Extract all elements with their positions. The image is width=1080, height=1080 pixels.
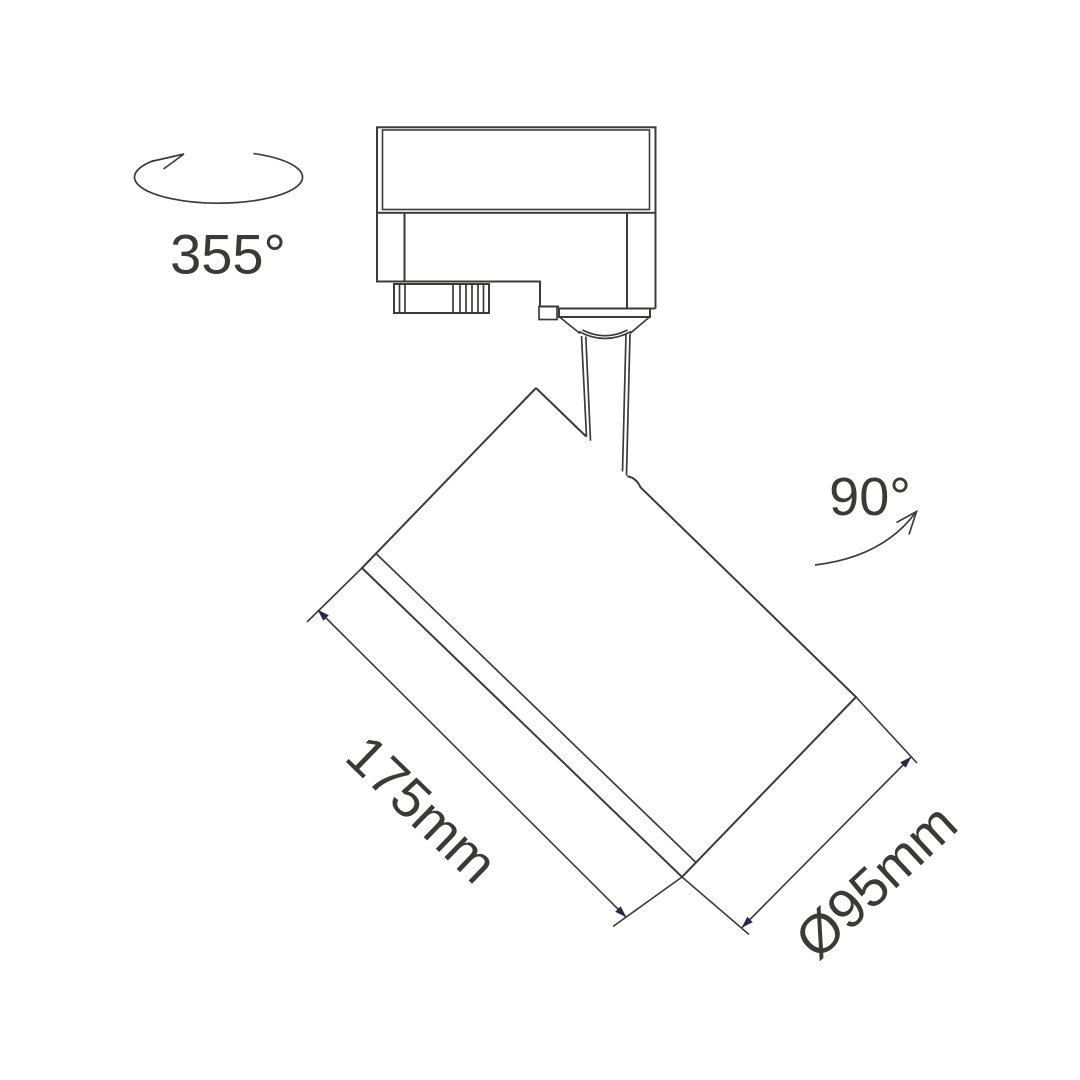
track-light-dimension-diagram: 175mm Ø95mm 355° 90° (0, 0, 1080, 1080)
tilt-rotation-annotation: 90° (815, 467, 917, 565)
yoke-dish (560, 317, 650, 339)
extension-line (307, 568, 362, 622)
tilt-rotation-label: 90° (829, 467, 911, 527)
adapter-body-lines (377, 213, 656, 309)
hinge-bar (559, 309, 650, 318)
adapter-top-inner (383, 130, 650, 210)
contact-block (394, 284, 489, 313)
dimension-length: 175mm (307, 568, 682, 927)
hinge-latch (539, 307, 557, 320)
extension-line (613, 877, 682, 927)
extension-line (856, 697, 917, 763)
extension-line (682, 877, 749, 935)
diameter-label: Ø95mm (783, 792, 968, 971)
rotation-arrowhead-icon (151, 154, 184, 169)
contact-block-pins (400, 284, 484, 313)
diagram-canvas: 175mm Ø95mm 355° 90° (0, 0, 1080, 1080)
pan-rotation-label: 355° (170, 223, 286, 286)
adapter-top-outer (377, 127, 656, 213)
track-adapter (377, 127, 656, 338)
length-label: 175mm (334, 723, 509, 895)
stem (582, 334, 631, 476)
rotation-ellipse-arrow-icon (135, 154, 303, 204)
pan-rotation-annotation: 355° (135, 154, 303, 286)
stem-lines (582, 334, 631, 476)
